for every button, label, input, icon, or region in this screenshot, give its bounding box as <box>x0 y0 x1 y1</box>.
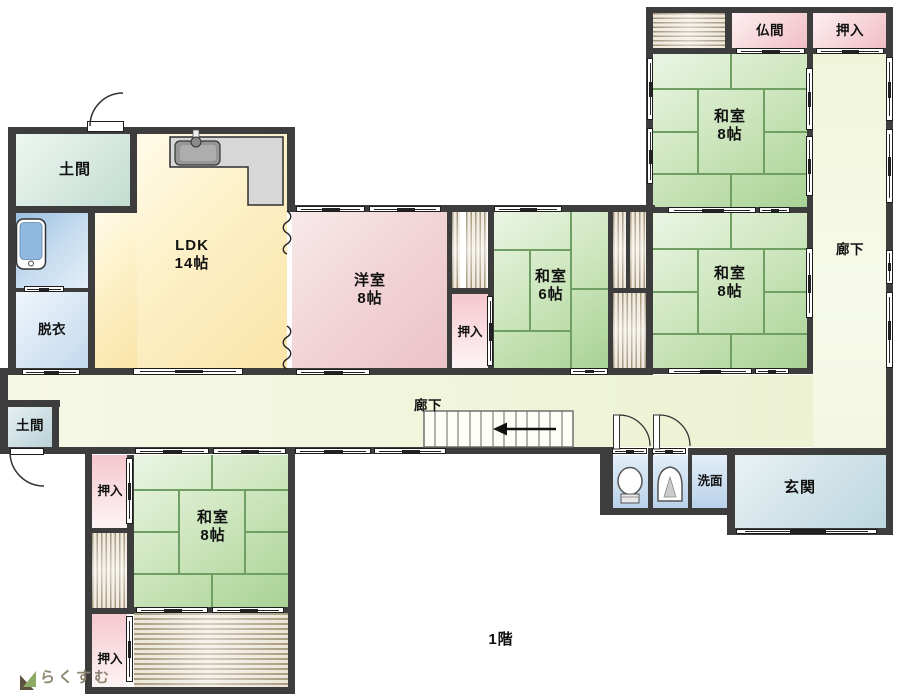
wall-segment <box>92 608 134 614</box>
window-bar <box>136 607 208 613</box>
wall-segment <box>85 687 295 694</box>
wall-segment <box>52 400 59 447</box>
wall-segment <box>0 368 8 454</box>
tatami-line <box>730 54 732 88</box>
doma-door-arc-icon <box>10 452 44 486</box>
wall-segment <box>725 13 732 48</box>
closet-strip-top-right <box>653 13 725 48</box>
label-datsui: 脱衣 <box>16 321 88 339</box>
tatami-line <box>653 248 807 250</box>
closet-strip-b3 <box>613 293 646 368</box>
window-bar <box>652 448 686 454</box>
wall-segment <box>600 448 613 515</box>
label-youshitsu: 洋室8帖 <box>325 272 415 308</box>
window-bar <box>668 207 756 213</box>
wall-segment <box>648 455 653 508</box>
label-washitsu8-mid: 和室8帖 <box>689 265 771 301</box>
veranda-strip <box>134 613 288 687</box>
label-senmen: 洗面 <box>688 472 732 490</box>
window-bar <box>806 248 813 318</box>
label-butsuma: 仏間 <box>737 22 803 40</box>
window-bar <box>126 616 133 682</box>
window-bar <box>296 369 370 375</box>
window-bar <box>668 368 752 374</box>
window-bar <box>213 448 286 454</box>
window-bar <box>816 48 884 54</box>
wall-segment <box>130 134 137 213</box>
wall-segment <box>88 206 95 368</box>
tatami-line <box>730 333 732 368</box>
window-bar <box>135 448 209 454</box>
room-bathroom <box>16 213 88 288</box>
closet-strip-a2 <box>466 212 487 288</box>
wall-segment <box>288 448 295 694</box>
window-bar <box>886 250 893 284</box>
label-oshiire-bl-top: 押入 <box>88 482 132 500</box>
wall-segment <box>727 448 735 535</box>
tatami-line <box>211 455 213 489</box>
wall-segment <box>727 448 893 455</box>
window-bar <box>647 128 653 184</box>
wall-segment <box>447 288 493 294</box>
tatami-line <box>494 249 570 251</box>
window-bar <box>369 206 441 212</box>
room-toilet-2 <box>653 455 688 508</box>
window-bar <box>570 368 608 375</box>
entry-door-leaf <box>87 121 124 132</box>
window-bar <box>24 286 64 292</box>
wall-segment <box>807 13 813 54</box>
label-doma-bottom: 土間 <box>7 417 53 435</box>
wall-segment <box>688 448 731 455</box>
tatami-line <box>653 88 807 90</box>
label-rouka-right: 廊下 <box>822 241 878 259</box>
label-ldk: LDK14帖 <box>147 237 237 273</box>
wall-segment <box>287 127 295 212</box>
window-bar <box>755 368 789 374</box>
doma-door-leaf <box>10 448 44 455</box>
window-bar <box>886 57 893 121</box>
label-oshiire-mid: 押入 <box>448 323 492 341</box>
closet-strip-a1 <box>452 212 460 288</box>
window-bar <box>886 129 893 203</box>
window-bar <box>736 48 805 54</box>
wall-segment <box>8 206 137 213</box>
closet-strip-b2 <box>630 212 646 288</box>
window-bar <box>494 206 562 212</box>
room-toilet-1 <box>613 455 648 508</box>
window-bar <box>212 607 284 613</box>
window-bar <box>806 68 813 130</box>
wall-segment <box>611 288 647 293</box>
label-floor: 1階 <box>477 631 525 649</box>
window-bar <box>22 369 80 375</box>
window-bar <box>295 448 371 454</box>
closet-strip-b1 <box>613 212 626 288</box>
room-ldk-extension <box>95 213 137 368</box>
tatami-line <box>730 213 732 248</box>
tatami-line <box>134 489 288 491</box>
logo-text: らくすむ <box>40 666 112 687</box>
label-washitsu8-top: 和室8帖 <box>689 108 771 144</box>
window-bar <box>374 448 446 454</box>
window-bar <box>886 292 893 368</box>
tatami-line <box>211 573 213 607</box>
label-genkan: 玄関 <box>768 479 832 497</box>
label-rouka-main: 廊下 <box>404 397 452 415</box>
tatami-line <box>494 330 570 332</box>
window-bar <box>759 207 790 213</box>
window-bar <box>296 206 365 212</box>
logo: らくすむ <box>18 666 112 687</box>
label-oshiire-top-right: 押入 <box>816 22 884 40</box>
window-bar <box>647 58 653 120</box>
wall-segment <box>8 127 295 134</box>
wall-segment <box>626 212 630 288</box>
window-bar <box>133 368 243 375</box>
window-bar <box>736 529 877 534</box>
closet-strip-bl <box>92 533 127 608</box>
window-bar <box>612 448 647 454</box>
label-doma-top: 土間 <box>40 161 110 179</box>
wall-segment <box>646 7 893 13</box>
window-bar <box>806 136 813 196</box>
wall-segment <box>600 508 735 515</box>
label-washitsu8-bottom: 和室8帖 <box>172 509 254 545</box>
wall-segment <box>8 127 16 375</box>
tatami-line <box>730 173 732 207</box>
wall-segment <box>92 528 134 533</box>
floor-plan: 土間 LDK14帖 脱衣 洋室8帖 押入 和室6帖 和室8帖 仏間 押入 廊下 … <box>0 0 903 700</box>
label-washitsu6: 和室6帖 <box>505 268 597 304</box>
